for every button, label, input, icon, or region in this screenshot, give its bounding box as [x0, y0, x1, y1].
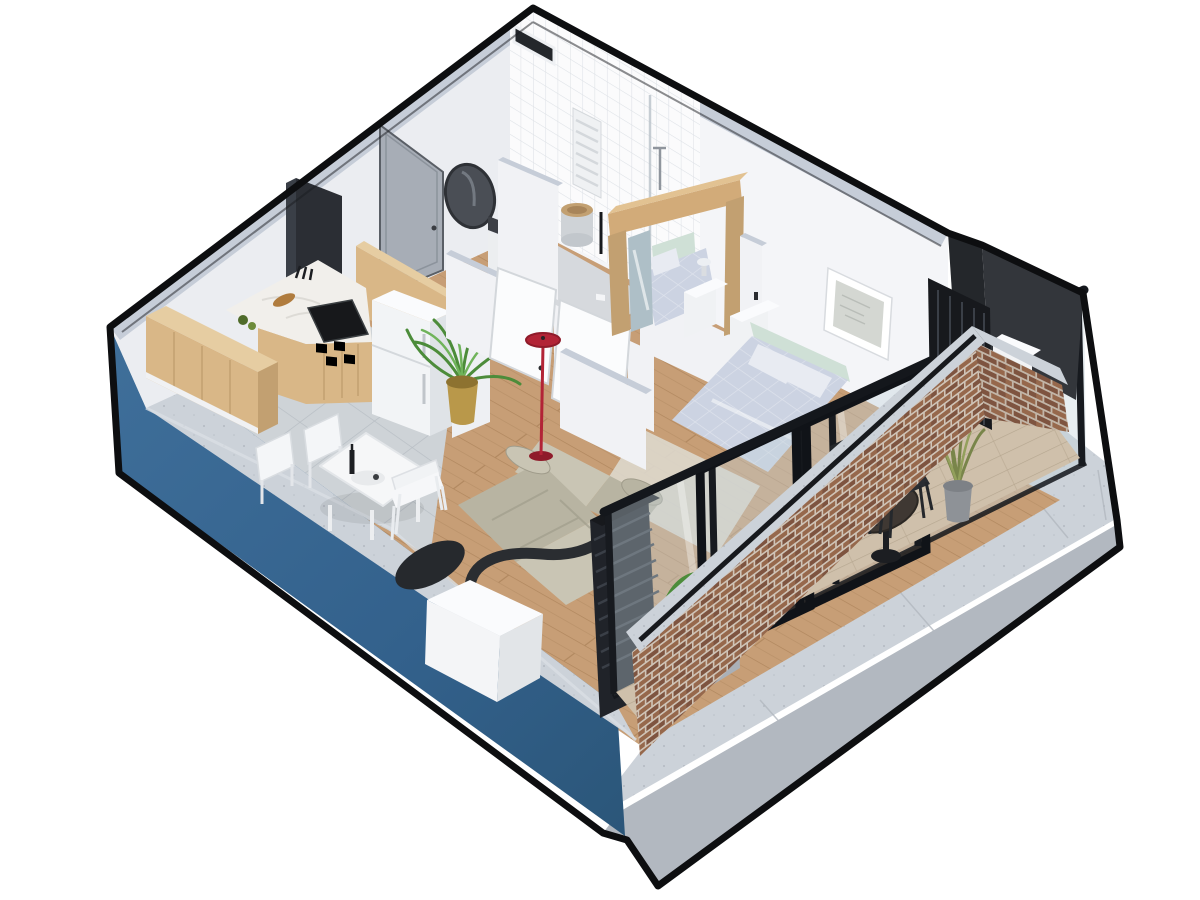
avocado-icon — [238, 315, 248, 325]
floorplan-3d-render — [0, 0, 1200, 900]
door-handle-icon — [432, 226, 437, 231]
apartment-scene — [0, 0, 1200, 900]
fridge — [372, 290, 452, 436]
tray-icon — [351, 471, 385, 486]
towel-radiator — [573, 108, 601, 198]
toilet — [561, 203, 593, 247]
